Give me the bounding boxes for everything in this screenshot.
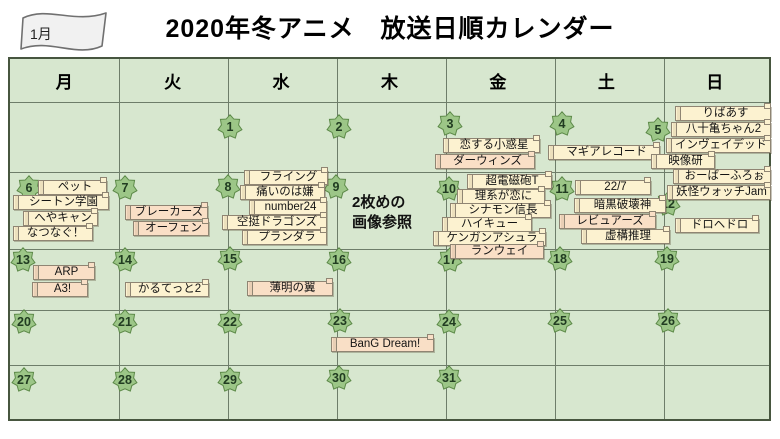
day-star: 29 xyxy=(217,367,243,393)
anime-title-box: プランダラ xyxy=(242,230,327,245)
day-star: 14 xyxy=(112,247,138,273)
day-star: 2 xyxy=(326,114,352,140)
day-star: 4 xyxy=(549,111,575,137)
day-number: 24 xyxy=(436,309,462,335)
day-number: 21 xyxy=(112,309,138,335)
day-star: 20 xyxy=(11,309,37,335)
day-star: 30 xyxy=(326,365,352,391)
day-number: 11 xyxy=(549,176,575,202)
day-number: 14 xyxy=(112,247,138,273)
day-number: 1 xyxy=(217,114,243,140)
weekday-thu: 木 xyxy=(335,59,443,102)
day-number: 28 xyxy=(112,367,138,393)
day-number: 23 xyxy=(327,308,353,334)
note-line1: 2枚めの xyxy=(352,193,412,213)
anime-title-box: 空挺ドラゴンズ xyxy=(222,215,327,230)
anime-title-box: BanG Dream! xyxy=(331,337,434,352)
anime-title-box: 八十亀ちゃん2 xyxy=(671,122,771,137)
day-number: 27 xyxy=(11,367,37,393)
day-number: 20 xyxy=(11,309,37,335)
anime-title-box: ARP xyxy=(33,265,95,280)
day-number: 16 xyxy=(326,247,352,273)
day-star: 7 xyxy=(112,175,138,201)
day-number: 3 xyxy=(437,111,463,137)
day-number: 15 xyxy=(217,246,243,272)
grid-line xyxy=(10,102,769,103)
anime-title-box: おーばーふろぉ xyxy=(673,169,771,184)
anime-title-box: 22/7 xyxy=(575,180,651,195)
day-star: 24 xyxy=(436,309,462,335)
day-star: 25 xyxy=(547,308,573,334)
day-star: 28 xyxy=(112,367,138,393)
anime-title-box: ハイキュー xyxy=(442,217,532,232)
day-star: 11 xyxy=(549,176,575,202)
note-text: 2枚めの 画像参照 xyxy=(352,193,412,233)
anime-title-box: シナモン信長 xyxy=(450,203,551,218)
day-star: 21 xyxy=(112,309,138,335)
day-star: 15 xyxy=(217,246,243,272)
day-number: 2 xyxy=(326,114,352,140)
weekday-wed: 水 xyxy=(227,59,335,102)
anime-title-box: A3! xyxy=(32,282,88,297)
anime-title-box: フライング xyxy=(244,170,328,185)
calendar-grid: 月 火 水 木 金 土 日 1 2 3 4 5 6 7 8 9 10 11 12… xyxy=(8,57,771,421)
anime-title-box: 理系が恋に xyxy=(457,189,545,204)
anime-title-box: 映像研 xyxy=(651,154,715,169)
day-star: 27 xyxy=(11,367,37,393)
weekday-header-row: 月 火 水 木 金 土 日 xyxy=(10,59,769,102)
day-star: 19 xyxy=(654,246,680,272)
anime-title-box: りばあす xyxy=(675,106,771,121)
day-star: 3 xyxy=(437,111,463,137)
anime-title-box: ペット xyxy=(38,180,107,195)
day-number: 8 xyxy=(215,174,241,200)
day-number: 25 xyxy=(547,308,573,334)
day-number: 19 xyxy=(654,246,680,272)
grid-line xyxy=(10,365,769,366)
anime-title-box: 妖怪ウォッチJam xyxy=(667,185,771,200)
anime-title-box: number24 xyxy=(249,200,327,215)
note-line2: 画像参照 xyxy=(352,213,412,233)
weekday-sun: 日 xyxy=(661,59,769,102)
anime-title-box: オーフェン xyxy=(133,221,209,236)
weekday-tue: 火 xyxy=(118,59,226,102)
weekday-fri: 金 xyxy=(444,59,552,102)
anime-title-box: レビュアーズ xyxy=(559,214,656,229)
day-star: 31 xyxy=(436,365,462,391)
day-star: 22 xyxy=(217,309,243,335)
day-star: 16 xyxy=(326,247,352,273)
day-number: 30 xyxy=(326,365,352,391)
anime-title-box: ブレーカーズ xyxy=(125,205,208,220)
page-title: 2020年冬アニメ 放送日順カレンダー xyxy=(0,9,780,45)
day-number: 29 xyxy=(217,367,243,393)
anime-title-box: ランウェイ xyxy=(450,244,544,259)
anime-title-box: 痛いのは嫌 xyxy=(240,185,325,200)
day-number: 4 xyxy=(549,111,575,137)
anime-title-box: マギアレコード xyxy=(548,145,660,160)
grid-line xyxy=(10,172,769,173)
day-number: 7 xyxy=(112,175,138,201)
anime-title-box: ドロヘドロ xyxy=(675,218,759,233)
day-star: 1 xyxy=(217,114,243,140)
day-number: 26 xyxy=(655,308,681,334)
day-number: 31 xyxy=(436,365,462,391)
day-star: 18 xyxy=(547,246,573,272)
weekday-sat: 土 xyxy=(552,59,660,102)
day-star: 23 xyxy=(327,308,353,334)
day-number: 18 xyxy=(547,246,573,272)
day-star: 26 xyxy=(655,308,681,334)
anime-title-box: 薄明の翼 xyxy=(247,281,333,296)
anime-title-box: インヴェイデッド xyxy=(666,138,771,153)
anime-title-box: ダーウィンズ xyxy=(435,154,535,169)
day-star: 8 xyxy=(215,174,241,200)
anime-title-box: 虚構推理 xyxy=(581,229,670,244)
anime-title-box: かるてっと2 xyxy=(125,282,209,297)
day-number: 22 xyxy=(217,309,243,335)
weekday-mon: 月 xyxy=(10,59,118,102)
anime-title-box: 恋する小惑星 xyxy=(443,138,540,153)
anime-title-box: なつなぐ！ xyxy=(13,226,93,241)
